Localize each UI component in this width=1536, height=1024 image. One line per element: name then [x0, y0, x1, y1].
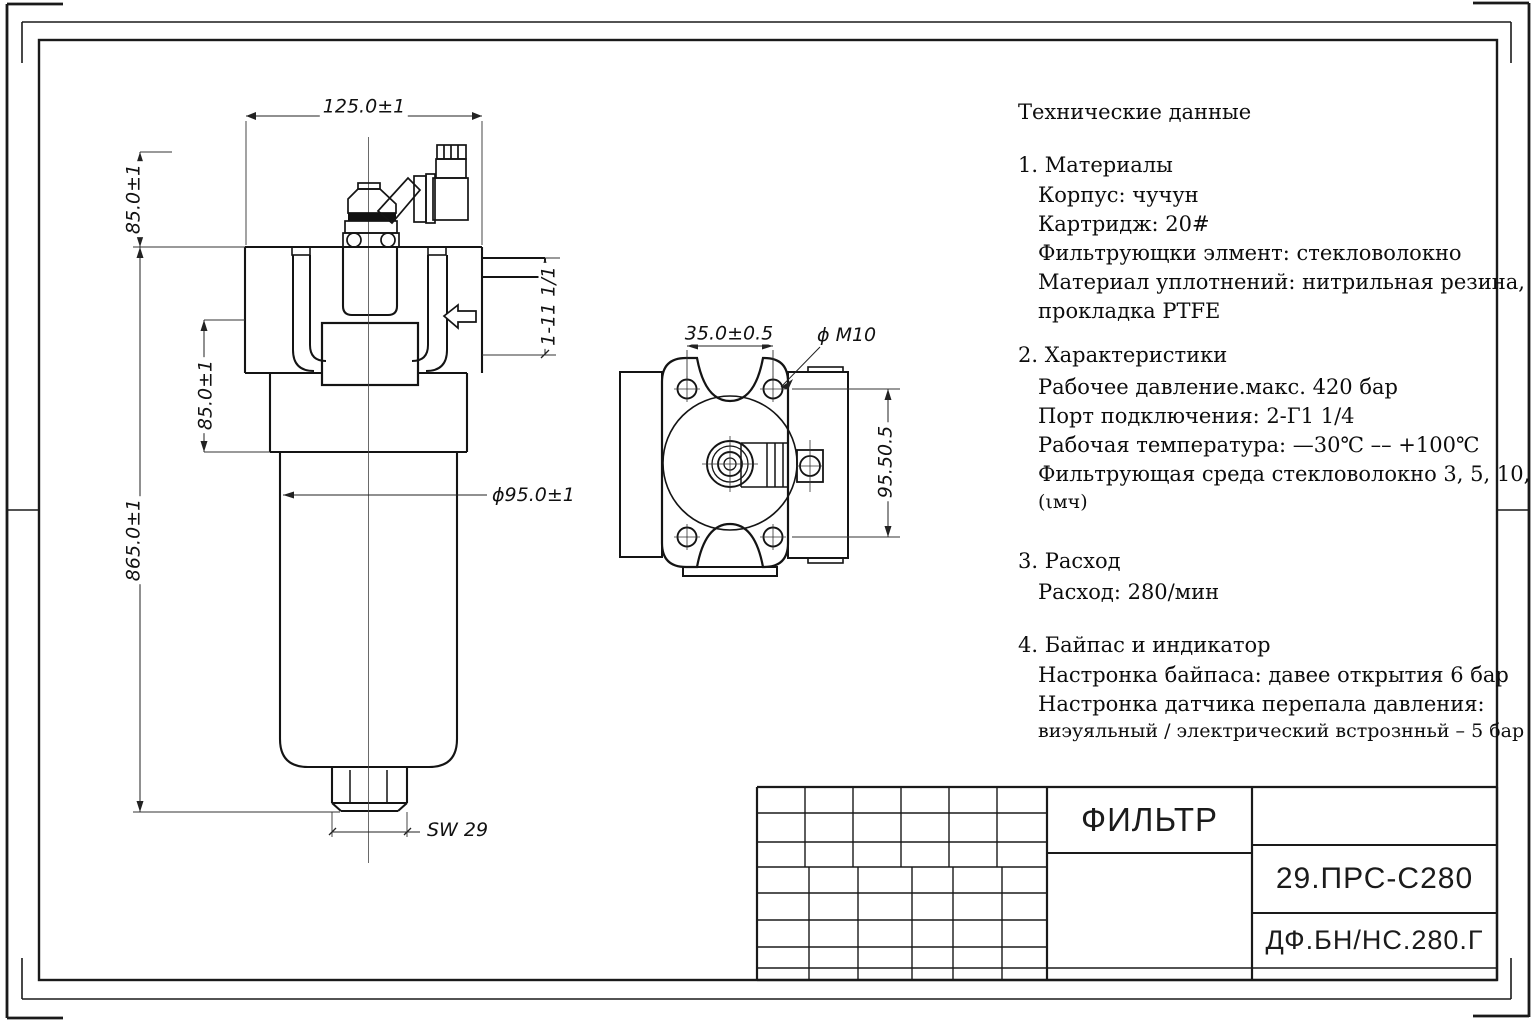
drawing-sheet: 125.0±1 85.0±1 85.0±1 865.0±1 ϕ95.0±1 SW… [0, 0, 1536, 1024]
title-block-part-name: ФИЛЬТР [1047, 787, 1252, 853]
section-2-line: Порт подключения: 2-Г1 1/4 [1038, 403, 1355, 429]
dim-hole-spacing-label: 35.0±0.5 [682, 324, 776, 345]
section-1-line: Фильтрующки элмент: стекловолокно [1038, 240, 1462, 266]
top-view-outline [620, 358, 848, 576]
dim-port-thread-label: 1-11 1/1 [539, 263, 560, 349]
section-2-line: Фильтрующая среда стекловолокно 3, 5, 10… [1038, 461, 1536, 487]
pressure-indicator-connector [343, 145, 468, 247]
dim-height-mid-label: 85.0±1 [196, 357, 217, 433]
section-1-line: Картридж: 20# [1038, 211, 1210, 237]
dim-thread-label: ϕ M10 [814, 325, 879, 346]
dim-height-total-label: 865.0±1 [124, 496, 145, 584]
section-1-line: Корпус: чучун [1038, 182, 1199, 208]
section-2-line: Рабочая температура: —30℃ –– +100℃ [1038, 432, 1479, 458]
dim-height-top-label: 85.0±1 [124, 161, 145, 237]
section-4-heading: 4. Байпас и индикатор [1018, 632, 1271, 658]
section-2-line: Рабочее давление.макс. 420 бар [1038, 374, 1398, 400]
section-3-line: Расход: 280/мин [1038, 579, 1219, 605]
dim-width-label: 125.0±1 [320, 97, 408, 118]
section-1-heading: 1. Материалы [1018, 152, 1173, 178]
section-2-heading: 2. Характеристики [1018, 342, 1227, 368]
indicator-window [322, 323, 418, 385]
section-2-line: (ιмч) [1038, 491, 1088, 515]
section-1-line: Материал уплотнений: нитрильная резина, [1038, 269, 1525, 295]
section-4-line: Настронка датчика перепала давления: [1038, 691, 1485, 717]
dim-wrench-label: SW 29 [424, 820, 491, 841]
section-4-line: виэуяльный / электрический встрознньй – … [1038, 720, 1524, 744]
dim-vertical-label: 95.50.5 [876, 423, 897, 502]
side-view-dimension-lines [133, 116, 560, 837]
section-3-heading: 3. Расход [1018, 548, 1121, 574]
dimension-arrowheads [137, 112, 892, 812]
flow-arrow-icon [444, 305, 476, 328]
tech-data-title: Технические данные [1018, 99, 1251, 125]
top-view-centermarks [674, 376, 824, 550]
title-block-model-code: 29.ПРС-С280 [1252, 845, 1497, 913]
title-block-doc-number: ДФ.БН/НС.280.Г [1252, 913, 1497, 968]
section-1-line: прокладка PTFE [1038, 298, 1220, 324]
dim-diameter-label: ϕ95.0±1 [489, 485, 578, 506]
section-4-line: Настронка байпаса: давее открытия 6 бар [1038, 662, 1509, 688]
side-view-outline [245, 247, 545, 811]
